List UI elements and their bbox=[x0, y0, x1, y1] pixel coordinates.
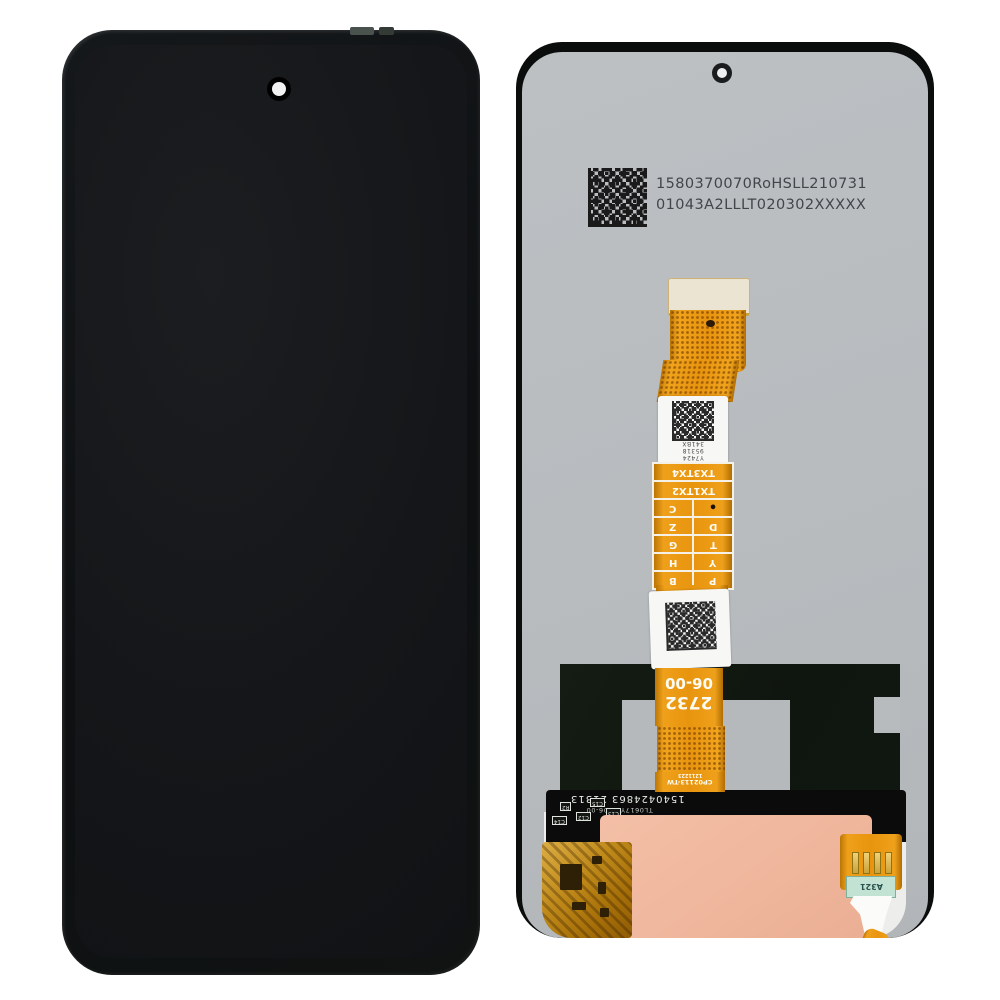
testpoint-row: C • bbox=[654, 500, 732, 518]
connector-block: A321 bbox=[846, 876, 896, 898]
testpoint-header-1: TX3TX4 bbox=[654, 464, 732, 482]
frame-tab bbox=[350, 27, 374, 35]
camera-hole-center bbox=[717, 68, 727, 78]
product-photo: 1580370070RoHSLL210731 01043A2LLLT020302… bbox=[0, 0, 1000, 1000]
punch-hole-camera-icon bbox=[267, 77, 291, 101]
connector-label: A321 bbox=[860, 877, 883, 895]
smd-component bbox=[600, 908, 609, 917]
label1-datamatrix bbox=[672, 401, 714, 441]
smd-component bbox=[598, 882, 606, 894]
front-screen-glass bbox=[75, 45, 467, 958]
adhesive-pad bbox=[600, 815, 872, 938]
component-ref: R2 bbox=[560, 802, 571, 811]
flex-part-number: CP02113-TW bbox=[667, 778, 713, 786]
flex-code-version: 06-00 bbox=[665, 674, 713, 692]
testpoint-row: Z D bbox=[654, 518, 732, 536]
flex-label-2 bbox=[649, 589, 732, 670]
front-display-assembly bbox=[62, 30, 480, 975]
camera-lens-icon bbox=[272, 82, 286, 96]
component-ref: C14 bbox=[552, 816, 567, 825]
flex-marking-segment: 06-00 2732 bbox=[655, 668, 723, 726]
pcb-silkscreen-1: 1540424863 21313 bbox=[570, 793, 685, 804]
testpoint-header-2: TX1TX2 bbox=[654, 482, 732, 500]
connector-pin bbox=[852, 852, 859, 874]
back-display-assembly: 1580370070RoHSLL210731 01043A2LLLT020302… bbox=[516, 42, 934, 938]
flex-cable-lower bbox=[657, 726, 725, 772]
connector-pin bbox=[885, 852, 892, 874]
flex-part-codes: 1211223 CP02113-TW bbox=[655, 772, 725, 792]
label1-codes: Y7424 95318 341BX bbox=[668, 440, 718, 461]
graphite-notch bbox=[874, 697, 900, 733]
serial-line-1: 1580370070RoHSLL210731 bbox=[656, 174, 867, 195]
component-ref: C12 bbox=[576, 812, 591, 821]
connector-pin bbox=[874, 852, 881, 874]
frame-tab bbox=[379, 27, 394, 35]
testpoint-row: G T bbox=[654, 536, 732, 554]
ic-chip bbox=[560, 864, 582, 890]
flex-hole bbox=[706, 320, 715, 327]
component-ref: C15 bbox=[590, 798, 605, 807]
label2-datamatrix bbox=[665, 601, 717, 651]
camera-hole-icon bbox=[712, 63, 732, 83]
testpoint-row: H Y bbox=[654, 554, 732, 572]
datamatrix-code bbox=[588, 168, 647, 227]
testpoint-table: TX3TX4 TX1TX2 C • Z D G T H Y B P bbox=[652, 462, 734, 590]
serial-number-label: 1580370070RoHSLL210731 01043A2LLLT020302… bbox=[656, 174, 867, 216]
smd-component bbox=[572, 902, 586, 910]
connector-pin bbox=[863, 852, 870, 874]
serial-line-2: 01043A2LLLT020302XXXXX bbox=[656, 195, 867, 216]
component-flex-board bbox=[542, 842, 632, 938]
flex-code-model: 2732 bbox=[665, 692, 712, 712]
smd-component bbox=[592, 856, 602, 864]
flex-label-1: Y7424 95318 341BX bbox=[658, 396, 728, 464]
